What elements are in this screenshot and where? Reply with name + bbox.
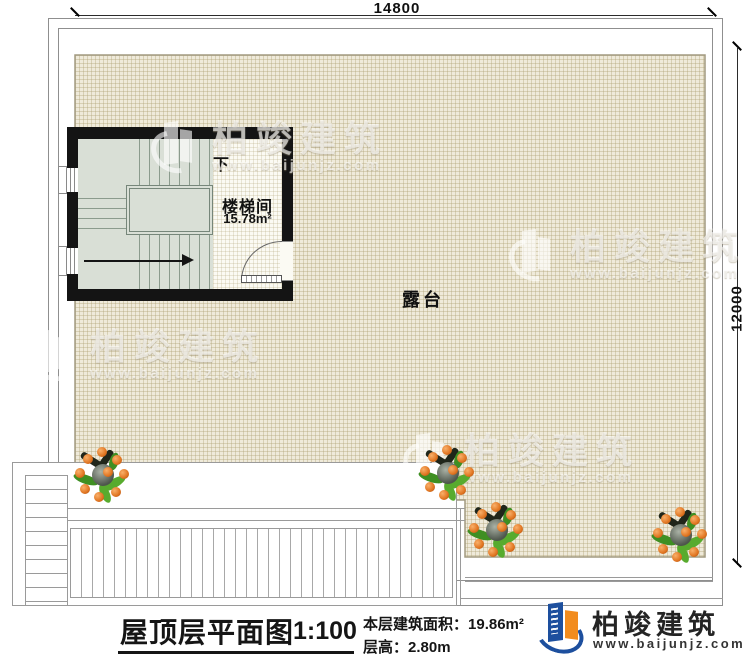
plant-decoration bbox=[653, 507, 709, 563]
company-logo-url: www.baijunjz.com bbox=[593, 636, 745, 651]
floor-area-line: 本层建筑面积：19.86m² bbox=[363, 613, 524, 634]
plant-decoration bbox=[469, 502, 525, 558]
stair-landing-inner bbox=[129, 188, 210, 232]
drawing-scale: 1:100 bbox=[293, 617, 357, 646]
floor-height-line: 层高：2.80m bbox=[363, 636, 451, 657]
stairwell-door-leaf bbox=[241, 275, 282, 283]
stairwell-room: 下 楼梯间 15.78m² bbox=[67, 127, 293, 301]
stair-direction-arrow bbox=[84, 260, 184, 262]
stairwell-window-2 bbox=[67, 248, 78, 274]
floor-area-label: 本层建筑面积： bbox=[363, 616, 468, 633]
roof-edge-line-2 bbox=[68, 520, 465, 521]
terrace-label: 露台 bbox=[402, 286, 444, 312]
top-dimension-label: 14800 bbox=[357, 0, 437, 17]
right-dimension-label: 12000 bbox=[729, 269, 746, 349]
roof-edge-line-1 bbox=[68, 508, 465, 509]
roof-edge-line-6 bbox=[460, 598, 723, 599]
stair-flight-lower bbox=[130, 235, 213, 289]
company-logo-icon bbox=[536, 601, 588, 655]
stairwell-window-sill-2 bbox=[58, 246, 67, 276]
stair-direction-arrow-head bbox=[182, 254, 194, 266]
roof-edge-line-5 bbox=[465, 581, 713, 582]
stair-side-treads bbox=[78, 189, 126, 235]
roof-edge-line-3 bbox=[460, 508, 461, 605]
drawing-title: 屋顶层平面图 bbox=[120, 611, 294, 651]
floor-height-label: 层高： bbox=[363, 639, 408, 656]
plant-decoration bbox=[75, 447, 131, 503]
stair-area bbox=[78, 139, 213, 289]
floor-height-value: 2.80m bbox=[408, 639, 451, 656]
stair-landing bbox=[126, 185, 213, 235]
stairwell-area-label: 15.78m² bbox=[213, 211, 282, 226]
floor-area-value: 19.86m² bbox=[468, 616, 524, 633]
floor-plan-canvas: 14800 12000 下 楼梯间 15.78m² 露台 bbox=[0, 0, 750, 667]
roof-edge-line-4 bbox=[465, 577, 713, 578]
stair-down-label: 下 bbox=[213, 151, 243, 175]
title-underline bbox=[118, 651, 354, 654]
eaves-ladder-column bbox=[25, 475, 68, 606]
eaves-tile-band bbox=[70, 528, 453, 598]
stair-flight-upper bbox=[130, 139, 213, 187]
stairwell-window-1 bbox=[67, 168, 78, 192]
plant-decoration bbox=[420, 445, 476, 501]
stairwell-window-sill-1 bbox=[58, 166, 67, 194]
